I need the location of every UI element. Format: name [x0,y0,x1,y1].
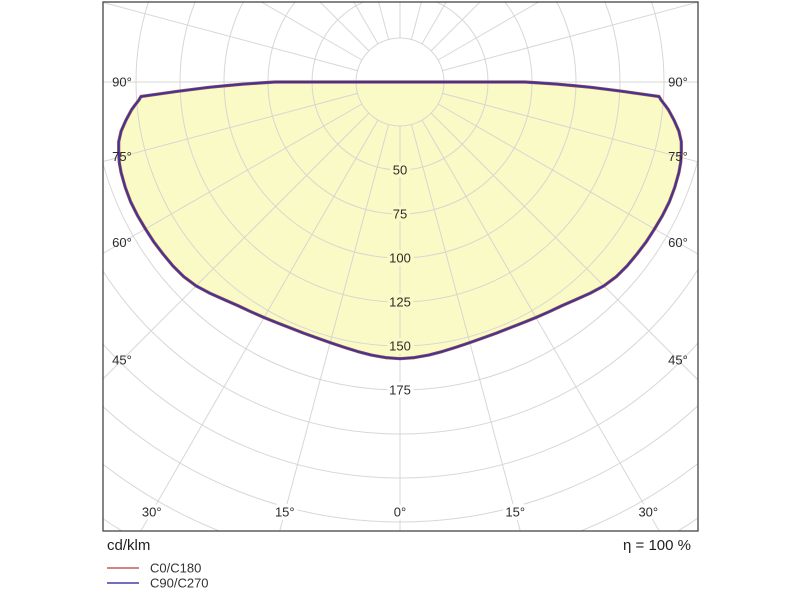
angle-tick-label: 75° [112,149,132,164]
angle-tick-label: 45° [668,353,688,368]
radial-tick-label: 50 [393,163,407,178]
angle-tick-label: 15° [275,505,295,520]
angle-tick-label: 60° [112,235,132,250]
radial-tick-label: 75 [393,207,407,222]
radial-tick-label: 150 [389,339,411,354]
angle-tick-label: 45° [112,353,132,368]
photometric-diagram-page: 50751001251501750°15°15°30°30°45°45°60°6… [0,0,800,600]
angle-tick-label: 60° [668,235,688,250]
unit-label: cd/klm [107,537,150,554]
radial-tick-label: 125 [389,295,411,310]
angle-tick-label: 0° [394,505,406,520]
radial-tick-label: 100 [389,251,411,266]
angle-tick-label: 90° [112,75,132,90]
angle-tick-label: 15° [505,505,525,520]
radial-tick-label: 175 [389,383,411,398]
legend: C0/C180 C90/C270 [107,561,209,591]
angle-tick-label: 30° [142,505,162,520]
legend-label-c0-c180: C0/C180 [150,561,201,576]
angle-tick-label: 75° [668,149,688,164]
legend-label-c90-c270: C90/C270 [150,576,209,591]
polar-intensity-chart: 50751001251501750°15°15°30°30°45°45°60°6… [0,0,800,600]
angle-tick-label: 90° [668,75,688,90]
efficiency-label: η = 100 % [623,537,691,554]
angle-tick-label: 30° [638,505,658,520]
